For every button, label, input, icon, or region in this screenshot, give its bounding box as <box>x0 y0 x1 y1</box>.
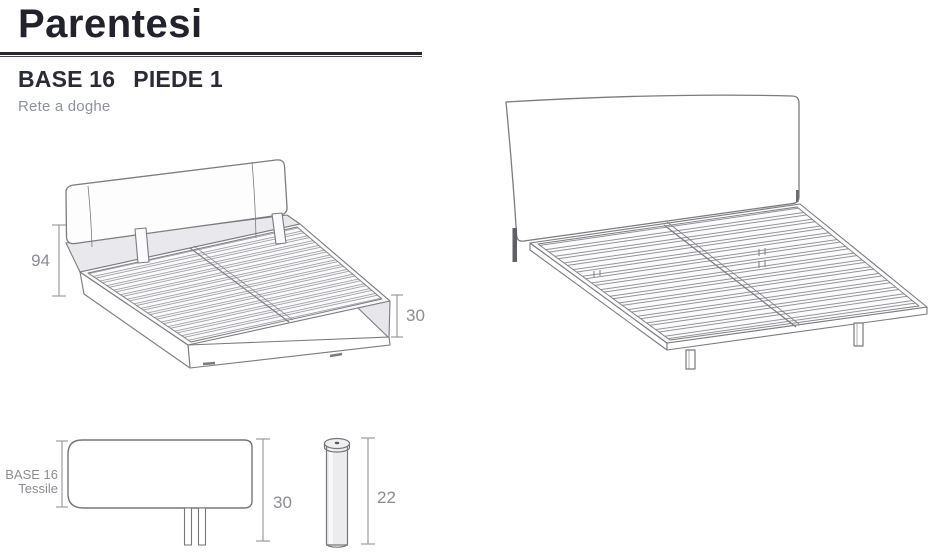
frame-leg-right <box>854 323 863 346</box>
dimension-base-total-height: 30 <box>256 439 292 541</box>
leg-highlight <box>329 447 333 544</box>
bed-foot-mark-left <box>203 363 215 364</box>
leg-front-view <box>325 439 350 548</box>
dimension-30-total-value: 30 <box>273 493 292 512</box>
catalog-page: Parentesi BASE 16 PIEDE 1 Rete a doghe <box>0 0 938 555</box>
dimension-base-label: BASE 16 Tessile <box>5 441 68 507</box>
base-panel <box>68 440 252 508</box>
frame-leg-front <box>686 350 695 369</box>
headboard-leg-right <box>796 190 799 202</box>
headboard-strap-left <box>135 228 149 263</box>
technical-drawings: 94 30 <box>0 0 938 555</box>
dimension-94-value: 94 <box>31 251 50 270</box>
base-name-label: BASE 16 <box>5 467 58 482</box>
bed-foot-mark-right <box>330 354 342 356</box>
base-leg-right <box>199 508 206 545</box>
bed-perspective-drawing <box>66 160 390 368</box>
dimension-leg-height: 22 <box>361 438 396 544</box>
headboard-leg-left <box>513 228 518 262</box>
base-side-view <box>68 440 252 545</box>
bed-front-face <box>188 337 390 368</box>
bed-frame-drawing <box>506 95 927 369</box>
leg-cap-hole <box>335 442 339 444</box>
dimension-22-value: 22 <box>377 488 396 507</box>
base-leg-left <box>185 508 192 545</box>
dimension-headboard-height: 94 <box>31 225 66 296</box>
base-finish-label: Tessile <box>18 481 58 496</box>
dimension-30-side-value: 30 <box>406 306 425 325</box>
dimension-base-side-height: 30 <box>391 295 425 337</box>
